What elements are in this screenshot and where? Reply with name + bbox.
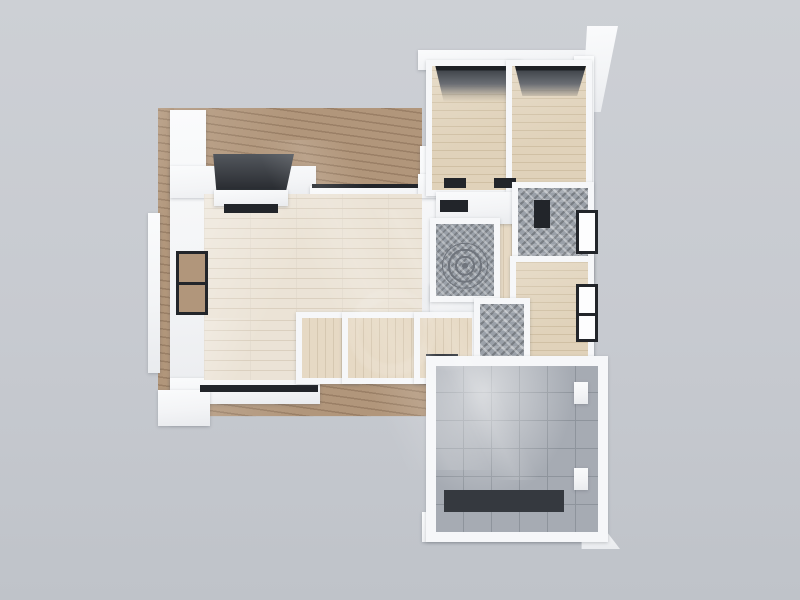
bathroom-1 xyxy=(430,218,500,302)
bedroom-2 xyxy=(506,60,592,192)
shelf-niche xyxy=(176,251,208,315)
window-mullion xyxy=(579,313,595,316)
tiled-room-right-tab-2 xyxy=(574,468,588,490)
wall-left-outer xyxy=(148,213,160,373)
media-unit-slot xyxy=(224,204,278,213)
bath2-vanity xyxy=(534,200,550,228)
screenshot-canvas: { "scene": { "description": "3D rendered… xyxy=(0,0,800,600)
bedroom-2-window-lintel xyxy=(512,66,586,96)
shelf-divider xyxy=(179,282,205,285)
bathroom-2-window xyxy=(576,210,598,254)
bath1-vanity xyxy=(440,200,468,212)
media-unit-top xyxy=(208,154,294,194)
small-room-window xyxy=(576,284,598,342)
bedroom-1-window-lintel xyxy=(432,66,516,102)
panorama-window xyxy=(200,385,318,392)
hall-doorway-1 xyxy=(444,178,466,188)
window-glass-top xyxy=(312,184,422,188)
wall-bottom-left xyxy=(158,390,210,426)
tiled-room-right-tab-1 xyxy=(574,382,588,404)
tiled-room-mat xyxy=(444,490,564,512)
